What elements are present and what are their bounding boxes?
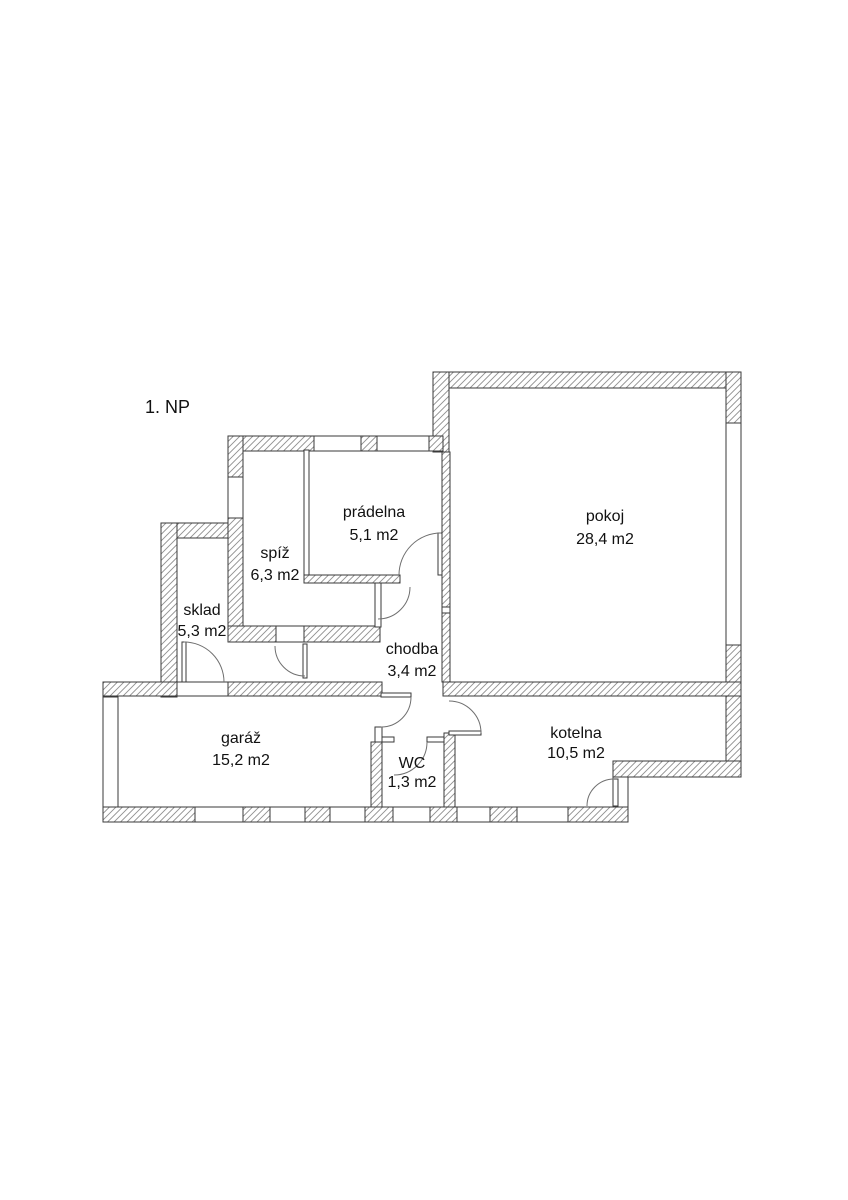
- room-label-sklad: sklad 5,3 m2: [178, 602, 227, 640]
- room-label-spiz: spíž 6,3 m2: [251, 545, 300, 584]
- room-name: sklad: [183, 602, 220, 619]
- room-label-wc: WC 1,3 m2: [388, 755, 437, 791]
- room-area: 5,1 m2: [350, 527, 399, 544]
- door-kotelna-exterior: [587, 779, 618, 806]
- room-name: chodba: [386, 641, 439, 658]
- room-area: 28,4 m2: [576, 531, 634, 548]
- page-title: 1. NP: [145, 397, 190, 417]
- room-label-chodba: chodba 3,4 m2: [386, 641, 439, 680]
- door-kotelna: [449, 701, 481, 735]
- room-label-garaz: garáž 15,2 m2: [212, 730, 270, 769]
- door-pradelna: [399, 533, 442, 575]
- walls-thin: [304, 450, 444, 742]
- room-label-pradelna: prádelna 5,1 m2: [343, 504, 405, 544]
- floor-plan-drawing: 1. NP prádelna 5,1 m2 pokoj 28,4 m2 spíž…: [0, 0, 848, 1200]
- room-name: kotelna: [550, 725, 602, 742]
- room-area: 6,3 m2: [251, 567, 300, 584]
- room-name: spíž: [260, 545, 289, 562]
- room-area: 5,3 m2: [178, 623, 227, 640]
- door-spiz: [275, 644, 307, 678]
- door-garaz-chodba: [381, 693, 411, 727]
- room-name: pokoj: [586, 508, 624, 525]
- door-spiz-chodba: [378, 587, 410, 619]
- floor-plan-page: 1. NP prádelna 5,1 m2 pokoj 28,4 m2 spíž…: [0, 0, 848, 1200]
- door-sklad-garaz: [182, 642, 224, 682]
- room-name: WC: [399, 755, 426, 772]
- room-label-kotelna: kotelna 10,5 m2: [547, 725, 605, 762]
- room-area: 3,4 m2: [388, 663, 437, 680]
- room-area: 1,3 m2: [388, 774, 437, 791]
- room-name: garáž: [221, 730, 261, 747]
- room-area: 15,2 m2: [212, 752, 270, 769]
- room-name: prádelna: [343, 504, 405, 521]
- room-area: 10,5 m2: [547, 745, 605, 762]
- room-label-pokoj: pokoj 28,4 m2: [576, 508, 634, 548]
